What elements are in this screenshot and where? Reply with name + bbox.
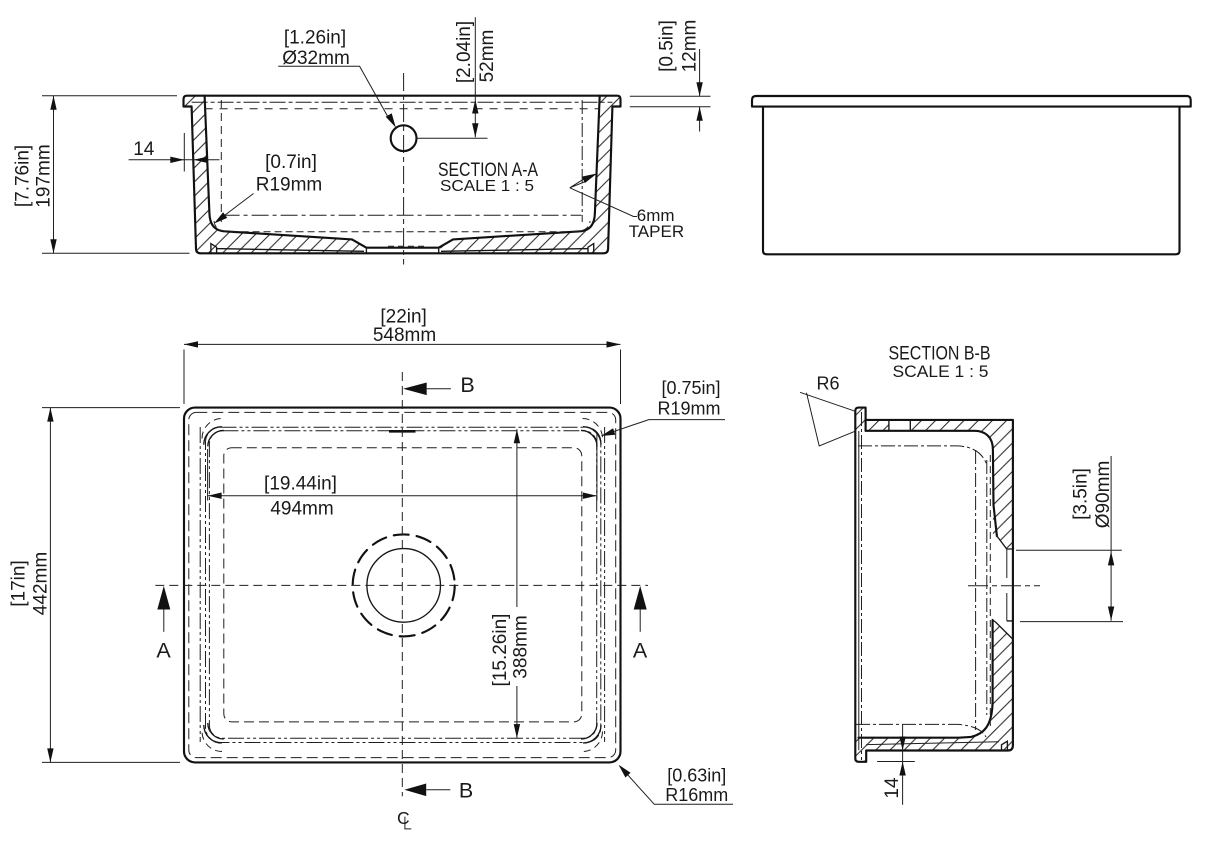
svg-text:52mm: 52mm [477,30,498,83]
svg-text:494mm: 494mm [270,499,333,520]
svg-text:14: 14 [133,139,155,160]
svg-text:12mm: 12mm [680,20,701,73]
svg-text:B: B [460,373,474,397]
svg-text:SCALE 1 : 5: SCALE 1 : 5 [440,178,534,195]
svg-text:C: C [397,808,410,828]
svg-text:A: A [156,639,171,663]
svg-text:[0.5in]: [0.5in] [657,20,678,72]
svg-text:[7.76in]: [7.76in] [13,145,34,207]
svg-text:SCALE 1 : 5: SCALE 1 : 5 [893,363,989,381]
svg-text:R19mm: R19mm [657,399,720,419]
svg-text:[3.5in]: [3.5in] [1071,468,1092,520]
svg-text:R6: R6 [816,374,839,394]
svg-text:197mm: 197mm [34,144,55,207]
svg-text:R16mm: R16mm [665,785,728,805]
svg-text:14: 14 [882,777,903,799]
svg-text:[17in]: [17in] [9,560,30,606]
svg-text:[15.26in]: [15.26in] [490,614,511,687]
svg-text:[2.04in]: [2.04in] [454,21,475,83]
svg-text:A: A [633,639,648,663]
svg-text:B: B [459,779,473,803]
svg-text:[0.7in]: [0.7in] [265,152,317,173]
svg-text:388mm: 388mm [511,615,532,678]
svg-text:442mm: 442mm [31,552,52,615]
svg-text:[0.75in]: [0.75in] [661,378,720,398]
svg-text:[0.63in]: [0.63in] [667,766,726,786]
svg-text:[1.26in]: [1.26in] [284,28,346,49]
svg-text:TAPER: TAPER [629,222,684,241]
svg-text:R19mm: R19mm [256,175,323,196]
svg-text:[19.44in]: [19.44in] [264,474,337,495]
svg-text:SECTION B-B: SECTION B-B [889,343,991,365]
svg-text:Ø90mm: Ø90mm [1093,461,1114,529]
svg-text:548mm: 548mm [373,325,436,346]
